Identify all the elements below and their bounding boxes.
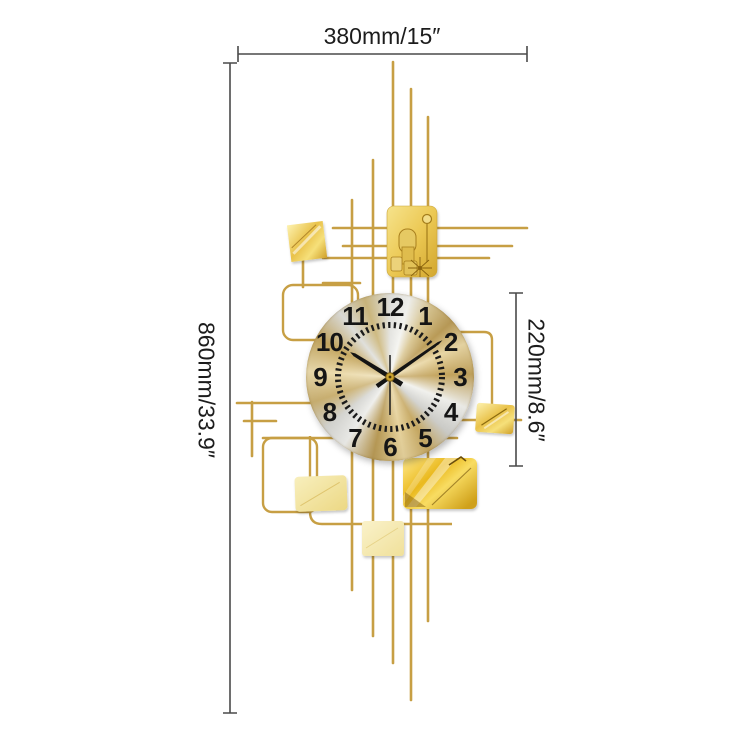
- second-hand: [389, 355, 391, 415]
- bright-gold-square: [403, 457, 477, 509]
- width-dimension-label: 380mm/15″: [324, 25, 441, 48]
- minute-hand: [376, 338, 444, 387]
- pale-square-bottom-left: [294, 475, 347, 512]
- gold-square-right: [475, 403, 515, 435]
- product-dimension-image: 121234567891011 380mm/15″ 860mm/33.9″ 22…: [0, 0, 750, 750]
- hour-hand: [349, 350, 403, 387]
- height-dimension-label: 860mm/33.9″: [195, 322, 218, 458]
- pale-square-bottom-mid: [362, 521, 404, 556]
- clock-hands: [306, 293, 474, 461]
- mechanism-plate: [387, 206, 437, 277]
- gold-square-top-left: [287, 221, 327, 262]
- clock-diameter-label: 220mm/8.6″: [525, 318, 548, 441]
- plate-ring-detail: [423, 215, 432, 224]
- clock-face: 121234567891011: [306, 293, 474, 461]
